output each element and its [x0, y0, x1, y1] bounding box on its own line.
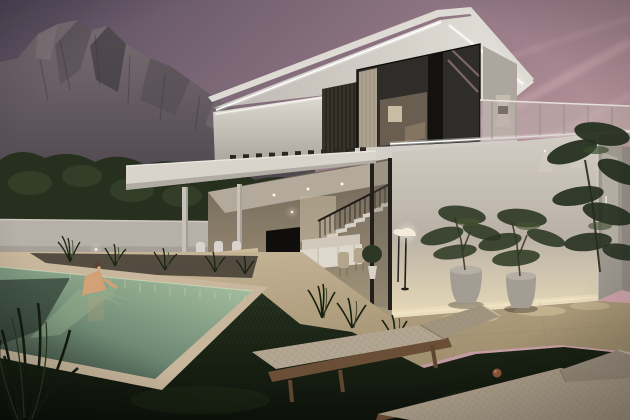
villa-render: [0, 0, 630, 420]
vignette: [0, 0, 630, 420]
